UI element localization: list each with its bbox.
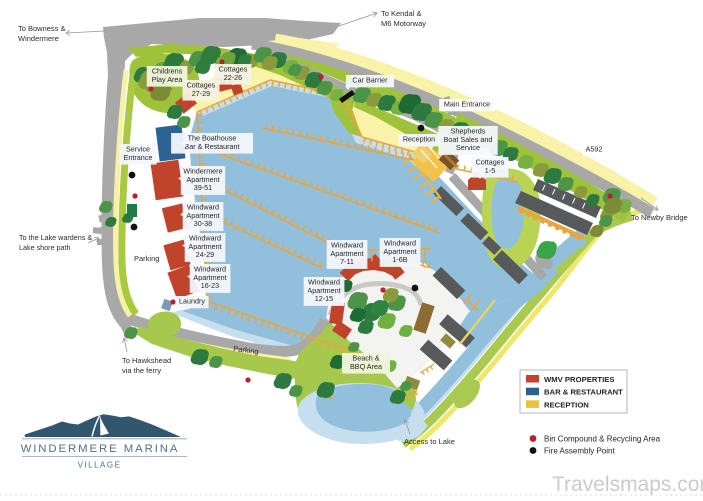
svg-text:Car Barrier: Car Barrier: [352, 76, 388, 85]
svg-text:WMV PROPERTIES: WMV PROPERTIES: [544, 375, 614, 384]
svg-text:1-6B: 1-6B: [392, 255, 407, 264]
svg-text:Reception: Reception: [403, 135, 435, 144]
svg-text:Entrance: Entrance: [124, 153, 153, 162]
svg-text:To Hawkshead: To Hawkshead: [122, 356, 171, 365]
svg-text:Parking: Parking: [134, 254, 159, 263]
svg-text:WINDERMERE MARINA: WINDERMERE MARINA: [21, 443, 180, 455]
svg-text:30-38: 30-38: [194, 219, 212, 228]
svg-text:Bar & Restaurant: Bar & Restaurant: [184, 142, 239, 151]
svg-text:Lake shore path: Lake shore path: [19, 243, 71, 252]
svg-text:VILLAGE: VILLAGE: [78, 461, 122, 470]
svg-text:1-5: 1-5: [485, 166, 495, 175]
svg-text:Travelsmaps.com: Travelsmaps.com: [552, 473, 703, 496]
svg-text:Service: Service: [456, 143, 480, 152]
svg-text:BAR & RESTAURANT: BAR & RESTAURANT: [544, 388, 623, 397]
svg-text:22-26: 22-26: [224, 73, 242, 82]
svg-text:Access to Lake: Access to Lake: [404, 437, 455, 446]
svg-text:27-29: 27-29: [192, 89, 210, 98]
svg-text:To Bowness &: To Bowness &: [18, 24, 66, 33]
svg-text:Fire Assembly Point: Fire Assembly Point: [544, 447, 615, 456]
svg-text:via the ferry: via the ferry: [122, 366, 161, 375]
svg-text:12-15: 12-15: [315, 294, 333, 303]
svg-text:39-51: 39-51: [194, 183, 212, 192]
svg-text:Play Area: Play Area: [152, 75, 183, 84]
svg-text:M6 Motorway: M6 Motorway: [381, 19, 426, 28]
svg-text:Laundry: Laundry: [179, 297, 205, 306]
svg-text:To the Lake wardens &: To the Lake wardens &: [19, 233, 92, 242]
svg-text:Windermere: Windermere: [18, 34, 59, 43]
svg-text:BBQ Area: BBQ Area: [350, 362, 382, 371]
svg-text:To Kendal &: To Kendal &: [381, 9, 421, 18]
svg-text:7-11: 7-11: [340, 257, 354, 266]
svg-text:Bin Compound & Recycling Area: Bin Compound & Recycling Area: [544, 435, 661, 444]
svg-text:Main Entrance: Main Entrance: [444, 100, 490, 109]
svg-text:RECEPTION: RECEPTION: [544, 400, 589, 409]
svg-text:To Newby Bridge: To Newby Bridge: [631, 213, 688, 222]
svg-text:A592: A592: [586, 145, 603, 154]
svg-text:24-29: 24-29: [196, 250, 214, 259]
svg-text:16-23: 16-23: [201, 281, 219, 290]
